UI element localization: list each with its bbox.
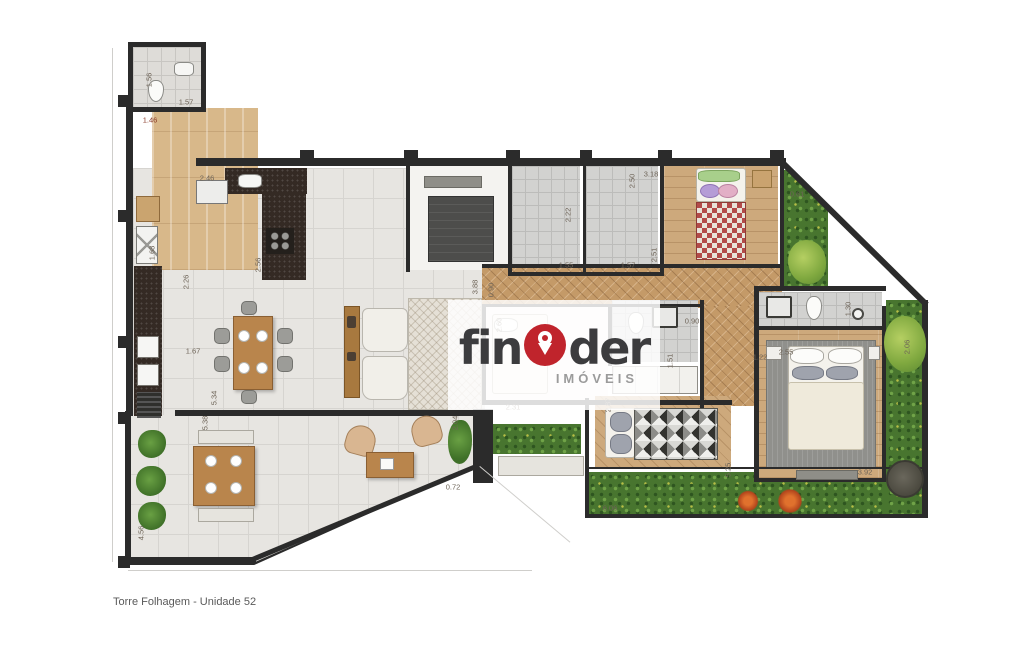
washer — [137, 336, 159, 358]
bench-dark — [424, 176, 482, 188]
wall-segment — [588, 467, 928, 469]
side-table — [752, 170, 772, 188]
wall-segment — [580, 150, 592, 160]
brand-subtitle: IMÓVEIS — [448, 371, 660, 386]
dimension-label: 2.46 — [200, 174, 215, 182]
wall-segment — [660, 162, 664, 276]
bench — [498, 456, 584, 476]
wall-segment — [404, 150, 418, 160]
chair — [214, 328, 230, 344]
bench-dark — [796, 470, 858, 480]
flower — [775, 488, 805, 514]
chair — [241, 390, 257, 404]
plate — [205, 455, 217, 467]
dimension-label: 2.04 — [451, 416, 459, 431]
dimension-label: 1.30 — [844, 302, 852, 317]
wall-segment — [201, 42, 206, 112]
plate — [230, 455, 242, 467]
dimension-label: 2.06 — [903, 340, 911, 355]
dark-circle — [886, 460, 924, 498]
wall-segment — [118, 336, 130, 348]
dimension-label: 1.46 — [143, 116, 158, 124]
bench — [198, 430, 254, 444]
dimension-label: 2.22 — [564, 208, 572, 223]
finder-pin-logo-icon — [524, 324, 566, 366]
dimension-label: 2.50 — [628, 174, 636, 189]
brand-text-der: der — [568, 330, 649, 367]
sink — [174, 62, 194, 76]
pillow-gray — [610, 412, 632, 432]
wall-segment — [128, 42, 206, 47]
dimension-label: 1.57 — [179, 98, 194, 106]
chair — [241, 301, 257, 315]
table-wood — [193, 446, 255, 506]
brand-text-fin: fin — [459, 330, 522, 367]
wall-segment — [510, 272, 662, 276]
washer — [137, 364, 159, 386]
blanket-tri — [634, 408, 718, 460]
sink — [238, 174, 262, 188]
wall-segment — [126, 414, 131, 562]
wall-segment — [118, 556, 130, 568]
wall-segment — [112, 48, 113, 562]
dimension-label: 5.25 — [724, 463, 732, 478]
wall-segment — [479, 466, 570, 543]
dimension-label: 0.61 — [790, 190, 805, 198]
wall-segment — [754, 286, 886, 291]
wall-segment — [473, 409, 493, 483]
plate — [238, 362, 250, 374]
plate — [256, 330, 268, 342]
dimension-label: 0.72 — [446, 483, 461, 491]
watermark: fin der IMÓVEIS — [448, 300, 660, 410]
wall-segment — [508, 162, 512, 276]
cab-wood — [136, 196, 160, 222]
wall-segment — [585, 398, 589, 516]
pillow-gray — [610, 434, 632, 454]
room-bath-2 — [586, 166, 658, 274]
wall-segment — [118, 95, 130, 107]
deco — [347, 352, 356, 361]
chair — [277, 328, 293, 344]
wall-segment — [118, 210, 130, 222]
wall-segment — [406, 162, 410, 272]
dimension-label: 2.26 — [182, 275, 190, 290]
wall-segment — [128, 570, 532, 571]
plate — [205, 482, 217, 494]
sofa — [362, 308, 408, 352]
wall-segment — [780, 162, 784, 290]
wall-segment — [583, 162, 586, 276]
dimension-label: 1.51 — [666, 354, 674, 369]
pillow — [790, 348, 824, 364]
dimension-label: 3.18 — [644, 170, 659, 178]
dimension-label: 6.06 — [603, 504, 618, 512]
plate — [256, 362, 268, 374]
wall-segment — [756, 326, 884, 330]
dimension-label: 2.56 — [254, 258, 262, 273]
dimension-label: 2.51 — [650, 248, 658, 263]
duvet — [788, 382, 864, 450]
chair — [214, 356, 230, 372]
dimension-label: 1.56 — [145, 73, 153, 88]
sofa — [362, 356, 408, 400]
nightstand — [868, 346, 880, 360]
room-planter-strip — [493, 424, 581, 454]
dimension-label: 1.67 — [186, 347, 201, 355]
deco — [347, 316, 356, 328]
cooktop — [266, 228, 294, 254]
dimension-label: 3.92 — [858, 468, 873, 476]
pillow — [828, 348, 862, 364]
wall-segment — [700, 300, 704, 408]
dimension-label: 5.38 — [201, 416, 209, 431]
grill — [137, 392, 161, 418]
flower — [735, 490, 761, 512]
brand-logo: fin der — [448, 324, 660, 367]
pillow-green — [698, 170, 740, 182]
pillow-gray — [792, 366, 824, 380]
room-hall-herringbone-2 — [700, 306, 754, 406]
bench — [198, 508, 254, 522]
pin-point — [538, 343, 552, 355]
caption: Torre Folhagem - Unidade 52 — [113, 596, 256, 608]
wall-segment — [506, 150, 520, 160]
wall-segment — [770, 150, 784, 160]
wall-segment — [128, 557, 256, 562]
wall-segment — [585, 514, 928, 518]
dimension-label: 3.88 — [471, 280, 479, 295]
dimension-label: 4.56 — [137, 526, 145, 541]
dimension-label: 0.90 — [685, 317, 700, 325]
dimension-label: 2.55 — [779, 348, 794, 356]
dimension-label: 1.68 — [148, 246, 156, 261]
cab — [196, 180, 228, 204]
lamp — [852, 308, 864, 320]
sink-dark — [766, 296, 792, 318]
deco-white — [380, 458, 394, 470]
wall-segment — [128, 107, 206, 112]
pillow-pink — [718, 184, 738, 198]
floorplan-canvas: 1.561.571.462.462.561.682.261.675.345.38… — [0, 0, 1024, 647]
dimension-label: 1.22 — [753, 353, 768, 361]
pillow-gray — [826, 366, 858, 380]
wall-segment — [196, 158, 786, 166]
plate — [230, 482, 242, 494]
dimension-label: 1.55 — [559, 261, 574, 269]
dimension-label: 0.90 — [487, 283, 495, 298]
dimension-label: 5.34 — [210, 391, 218, 406]
plate — [238, 330, 250, 342]
wall-segment — [300, 150, 314, 160]
wall-segment — [118, 412, 130, 424]
chair — [277, 356, 293, 372]
bush — [788, 240, 826, 284]
table-wood — [233, 316, 273, 390]
wall-segment — [175, 410, 487, 416]
wall-segment — [126, 96, 133, 416]
dark-box — [428, 196, 494, 262]
blanket-red — [696, 202, 746, 260]
wall-segment — [754, 286, 759, 480]
pillow-purple — [700, 184, 720, 198]
dimension-label: 1.57 — [621, 261, 636, 269]
wall-segment — [658, 150, 672, 160]
